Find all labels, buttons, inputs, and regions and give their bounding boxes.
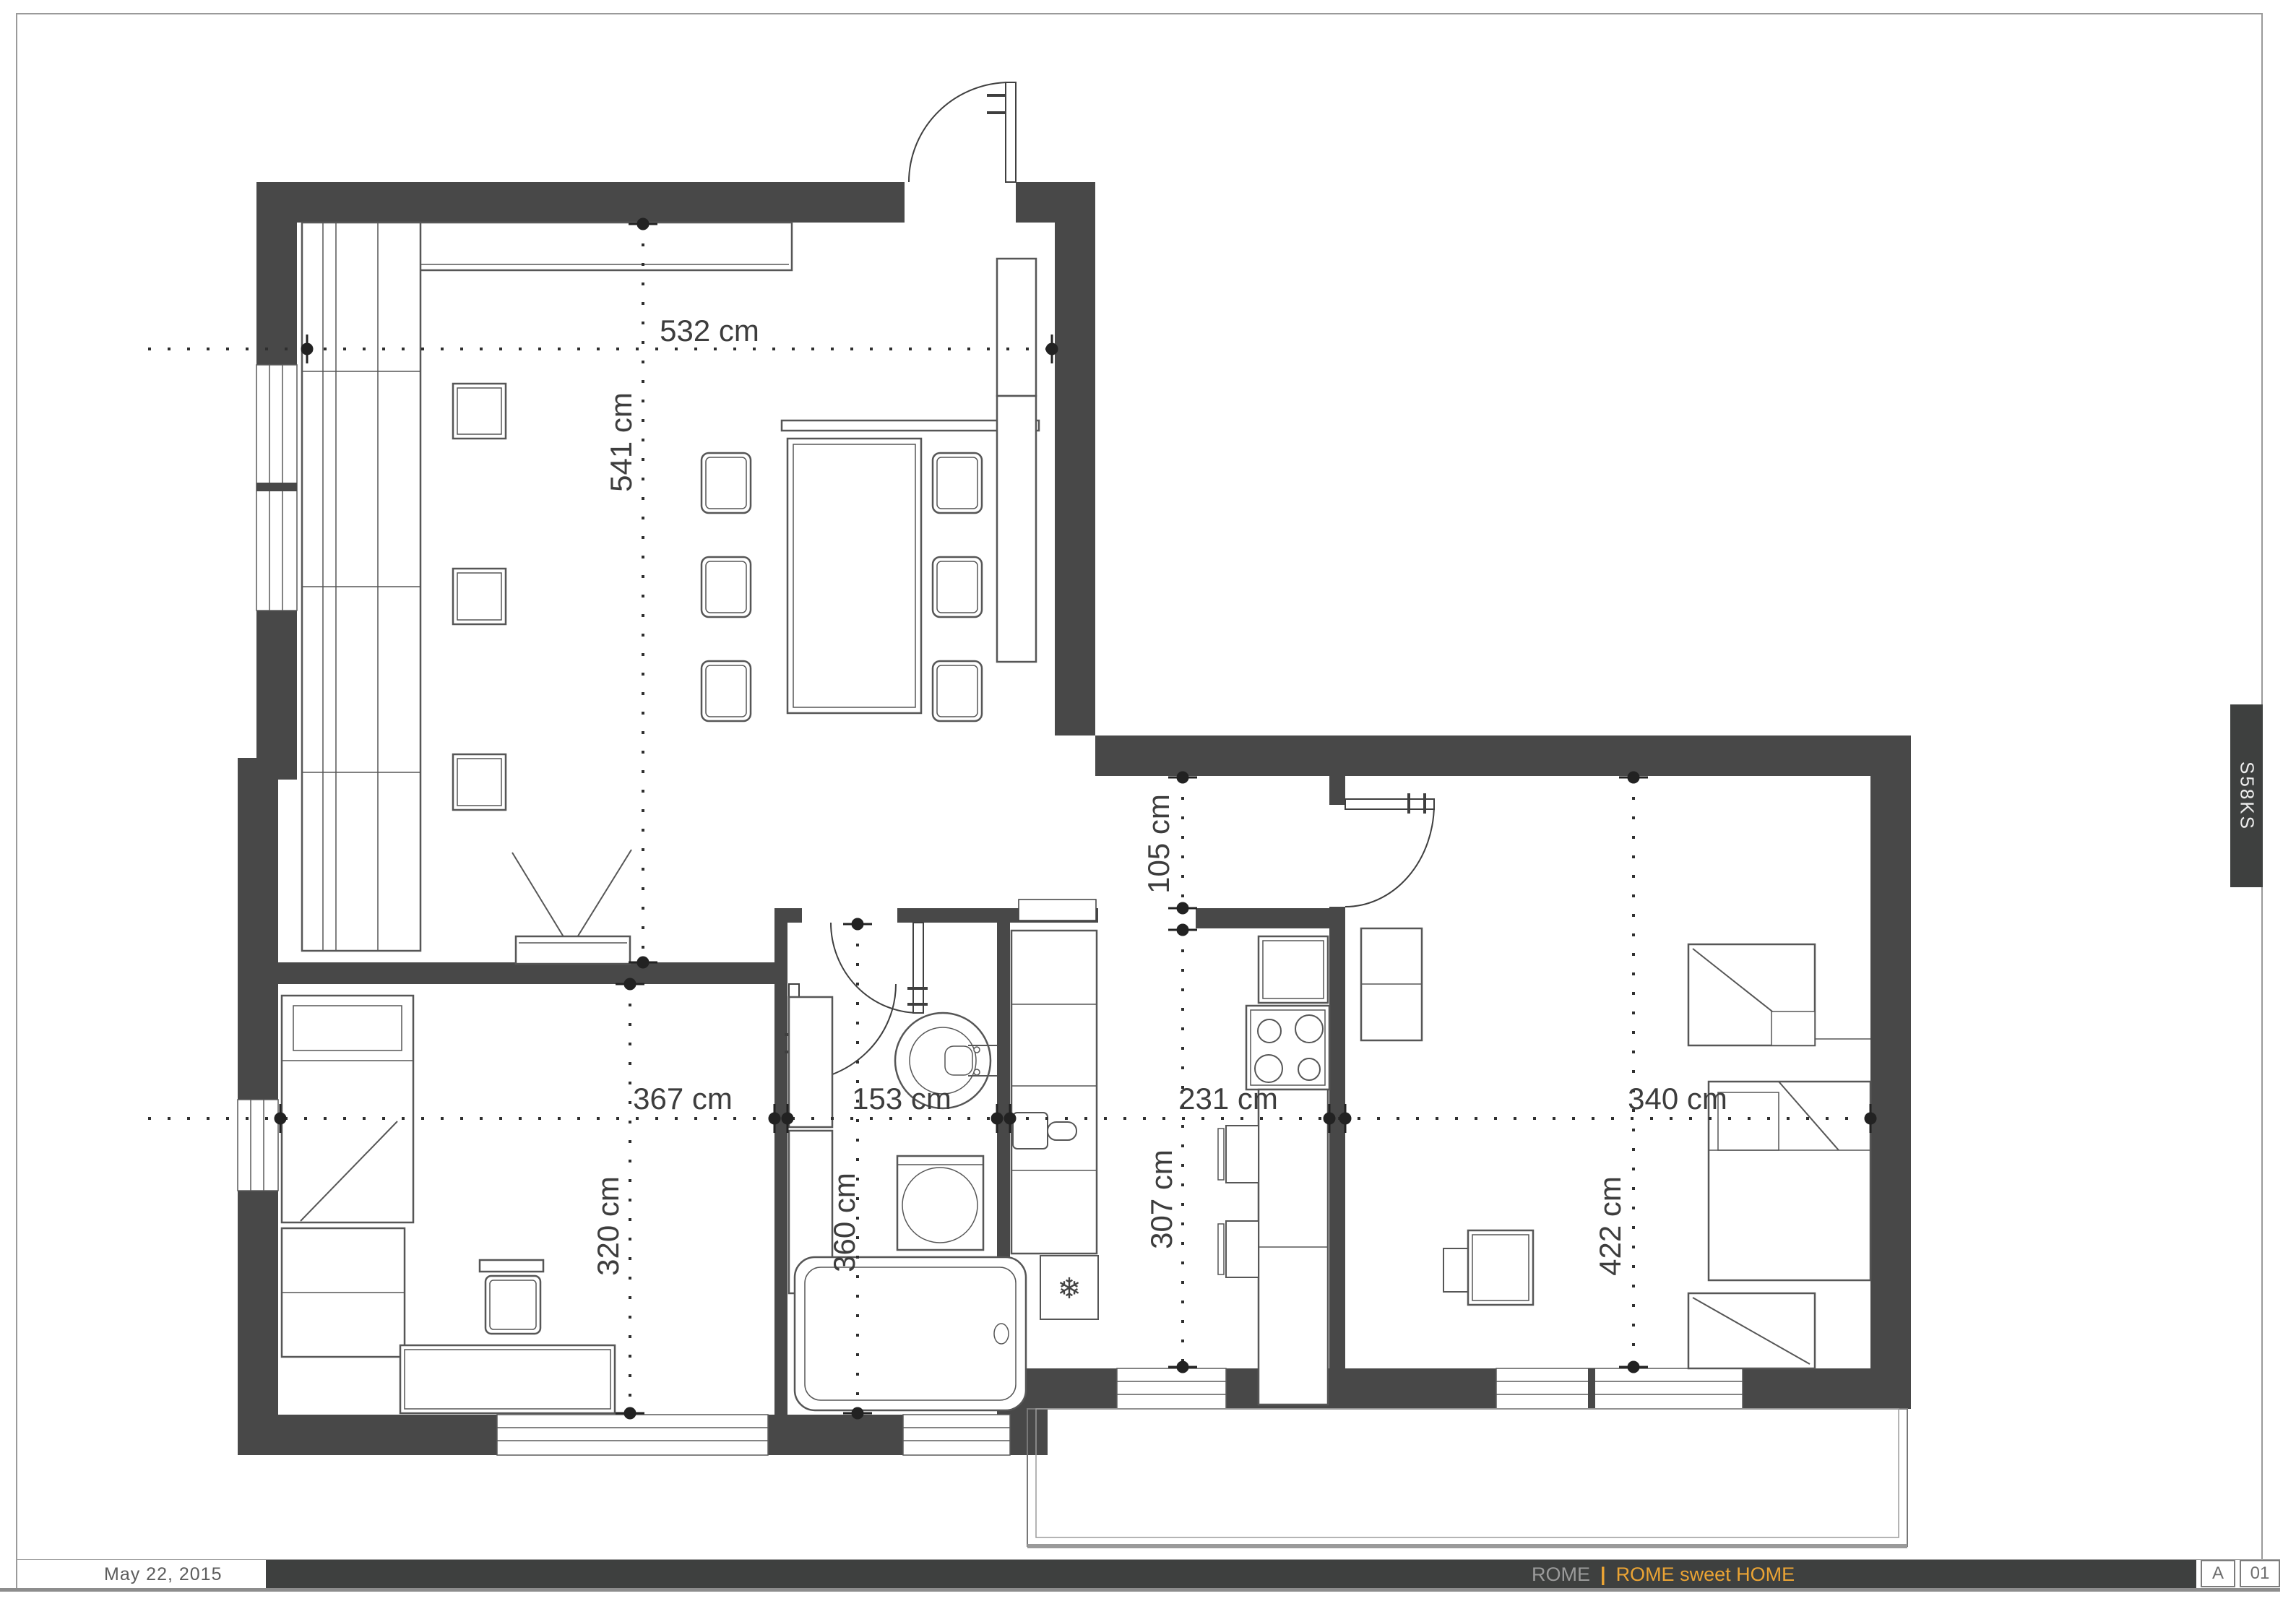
- balcony: [1027, 1409, 1907, 1546]
- bedroom1-bottom-window: [497, 1415, 768, 1455]
- bed2: [1709, 1082, 1870, 1280]
- dim-bedroom2-depth: 422 cm: [1593, 1176, 1627, 1276]
- entry-cabinets: [997, 259, 1036, 662]
- dresser1: [400, 1345, 615, 1413]
- sheet-bottom-rule: [0, 1588, 2280, 1592]
- drawing-code: S58KS: [2235, 762, 2258, 831]
- bedroom2-furniture: [1361, 928, 1870, 1368]
- kitchen-counter-left: [1011, 931, 1097, 1254]
- project-name: ROME sweet HOME: [1616, 1563, 1795, 1586]
- kitchen-counter-right: [1259, 1090, 1328, 1405]
- bed1: [282, 996, 413, 1222]
- stove: [1246, 1006, 1329, 1090]
- drawing-code-tab: S58KS: [2230, 704, 2263, 887]
- desk2: [1443, 1230, 1533, 1305]
- vanity: [789, 997, 832, 1127]
- dim-bedroom1-width: 367 cm: [633, 1082, 733, 1116]
- desk1: [480, 1260, 543, 1334]
- bedroom2-door: [1345, 793, 1434, 907]
- dim-kitchen-depth: 307 cm: [1144, 1149, 1178, 1249]
- bedroom1-left-window: [238, 1100, 278, 1191]
- tv-console: [512, 850, 631, 964]
- wardrobe2-top: [1688, 944, 1870, 1045]
- dim-bathroom-depth: 360 cm: [827, 1173, 861, 1272]
- snowflake-icon: ❄: [1057, 1273, 1082, 1305]
- sheet-date: May 22, 2015: [104, 1560, 223, 1589]
- washing-machine: [897, 1156, 983, 1250]
- project-title: ROME | ROME sweet HOME: [1532, 1560, 1795, 1589]
- entry-door: [909, 82, 1016, 182]
- dim-living-width: 532 cm: [660, 314, 759, 348]
- bedroom1-furniture: [282, 996, 615, 1413]
- dim-bathroom-width: 153 cm: [852, 1082, 951, 1116]
- bathroom-window: [903, 1415, 1010, 1455]
- wardrobe2-bottom: [1688, 1293, 1815, 1368]
- dimension-labels: 532 cm 367 cm 153 cm 231 cm 340 cm 541 c…: [591, 314, 1727, 1276]
- dim-passage-width: 105 cm: [1141, 794, 1175, 894]
- dim-bedroom1-depth: 320 cm: [591, 1176, 625, 1276]
- title-bar: May 22, 2015 ROME | ROME sweet HOME A 01: [17, 1559, 2280, 1588]
- bathtub: [795, 1257, 1026, 1410]
- freezer-unit: ❄: [1040, 1256, 1098, 1319]
- kitchen-window: [1117, 1368, 1226, 1409]
- bathroom-fixtures: [789, 997, 1026, 1410]
- dim-bedroom2-width: 340 cm: [1628, 1082, 1727, 1116]
- dim-living-depth: 541 cm: [604, 392, 638, 492]
- bathroom-door: [831, 923, 928, 1013]
- kitchen-stools: [1218, 1126, 1259, 1277]
- revision-box: A: [2201, 1560, 2235, 1587]
- bedroom2-window: [1496, 1368, 1743, 1409]
- dining-table: [787, 439, 921, 713]
- wardrobe1: [282, 1228, 405, 1357]
- kitchenette-counter: [375, 223, 792, 270]
- dim-kitchen-width: 231 cm: [1178, 1082, 1278, 1116]
- living-left-window: [256, 365, 297, 611]
- kitchen-pass-through: [1019, 900, 1096, 920]
- wall-cabinet-run: [302, 223, 420, 951]
- wardrobe2-door-side: [1361, 928, 1422, 1040]
- floor-plan: ❄: [0, 0, 2296, 1622]
- side-tables: [453, 384, 506, 810]
- page-number-box: 01: [2240, 1560, 2280, 1587]
- brand-name: ROME: [1532, 1563, 1590, 1586]
- fridge: [1259, 936, 1328, 1003]
- title-bar-fill: [266, 1560, 2196, 1589]
- brand-separator: |: [1600, 1563, 1606, 1586]
